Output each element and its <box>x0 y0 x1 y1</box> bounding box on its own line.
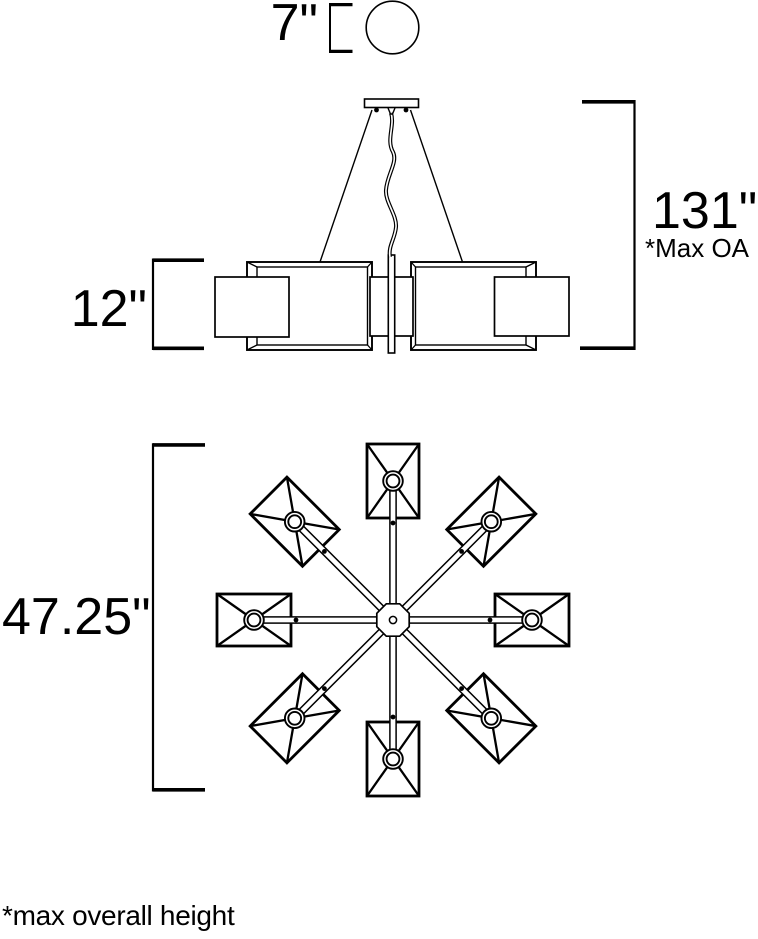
height-dim-bracket <box>580 100 635 350</box>
footnote-label: *max overall height <box>2 902 234 930</box>
hub-center-hole <box>389 616 396 623</box>
width-dim-bracket <box>153 443 205 791</box>
canopy-diameter-label: 7" <box>230 0 318 49</box>
stem <box>388 255 394 353</box>
spoke-w <box>217 594 379 646</box>
max-height-label: 131" <box>652 185 757 237</box>
side-shade-right <box>495 277 570 336</box>
canopy-screw-right <box>404 108 409 113</box>
power-cord-core <box>386 113 396 257</box>
side-shade-left <box>215 277 289 337</box>
canopy-screw-left <box>374 108 379 113</box>
fixture-width-label: 47.25" <box>2 591 151 643</box>
canopy-dim-bracket <box>330 3 353 53</box>
canopy-plate <box>365 99 419 108</box>
spoke-e <box>408 594 570 646</box>
spoke-n <box>367 444 419 606</box>
hang-wire-left <box>320 110 372 262</box>
side-view <box>215 99 569 353</box>
chandelier-spec-diagram: 7" 131" *Max OA 12" 47.25" *max overall … <box>0 0 758 939</box>
shade-height-bracket <box>153 259 204 351</box>
plan-view <box>217 444 569 796</box>
line-art <box>0 0 758 939</box>
shade-height-label: 12" <box>59 283 147 335</box>
max-height-note-label: *Max OA <box>645 235 749 261</box>
canopy-top-circle <box>366 1 419 54</box>
spoke-s <box>367 635 419 797</box>
hang-wire-right <box>411 110 463 262</box>
